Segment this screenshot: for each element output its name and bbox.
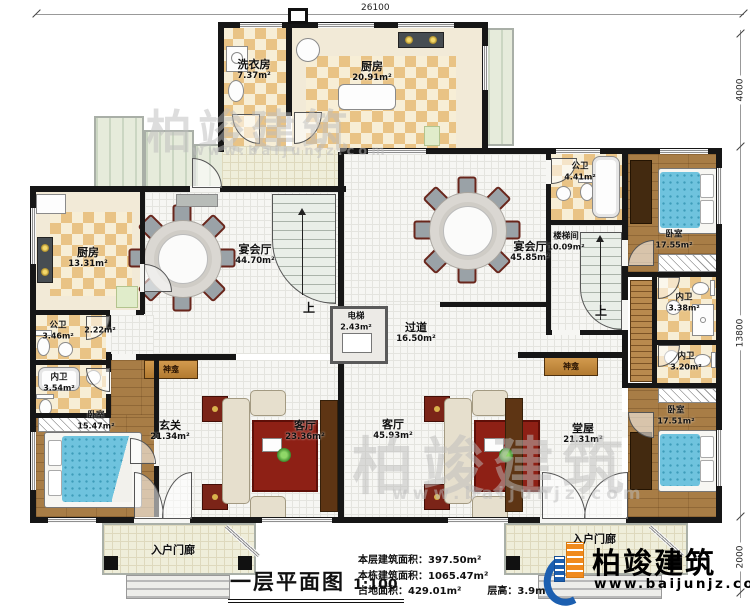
window: [31, 208, 36, 264]
room-label-corridor: 过道16.50m²: [396, 322, 435, 344]
room-label-foyer: 玄关21.34m²: [150, 420, 189, 442]
porch-left-pillar-1: [104, 556, 118, 570]
pillow: [700, 436, 714, 458]
stove-icon: [37, 237, 53, 283]
logo-building-icon: [544, 538, 590, 598]
pillow: [700, 460, 714, 482]
window: [556, 149, 600, 154]
door-opening: [110, 310, 136, 315]
window: [717, 168, 722, 224]
pillow: [48, 470, 62, 496]
bathtub: [592, 156, 620, 218]
window: [717, 430, 722, 486]
room-hall-small-floor: [111, 315, 154, 354]
wall-segment: [140, 190, 145, 314]
green-mat: [424, 126, 440, 146]
window: [262, 518, 332, 523]
room-label-bath-tr: 内卫3.38m²: [668, 294, 700, 313]
elevator-car: [342, 333, 372, 353]
dresser: [630, 432, 652, 490]
flue-box: [288, 8, 308, 24]
room-label-porch-left: 入户门廊: [151, 545, 195, 558]
green-mat: [116, 286, 138, 308]
toilet-tank: [710, 280, 715, 296]
room-label-laundry: 洗衣房7.37m²: [237, 59, 271, 81]
dimension-top-value: 26100: [358, 3, 393, 13]
watermark-url: www.baijunjz.com: [392, 484, 646, 504]
company-logo: 柏竣建筑 www.baijunjz.com: [544, 538, 750, 600]
door-opening: [622, 240, 628, 266]
sofa: [222, 398, 250, 504]
plan-title: 一层平面图: [230, 570, 345, 594]
room-label-bedroom-tr: 卧室17.55m²: [655, 231, 692, 250]
wall-segment: [622, 152, 628, 388]
stair-arrow-head: [298, 208, 306, 215]
window: [448, 518, 508, 523]
room-label-banquet-right: 宴会厅45.85m²: [510, 241, 549, 263]
shower-drain: [700, 317, 706, 323]
stair-arrow-head: [596, 235, 604, 242]
closet: [630, 280, 654, 382]
altar-table: 神龛: [144, 360, 198, 379]
room-label-elevator: 电梯2.43m²: [340, 313, 372, 332]
door-opening: [112, 354, 136, 360]
altar-label: 神龛: [163, 364, 179, 375]
dimension-line-top: [36, 14, 744, 15]
door-opening: [552, 330, 580, 335]
wall-segment: [546, 220, 626, 225]
terrace-step-1: [94, 116, 144, 190]
room-label-bedroom-br: 卧室17.51m²: [657, 407, 694, 426]
armchair: [472, 390, 508, 416]
stove-icon: [398, 32, 444, 48]
plant: [277, 448, 291, 462]
window: [31, 432, 36, 490]
mattress: [660, 434, 700, 486]
stairs-up-label: 上: [595, 305, 607, 319]
wall-segment: [518, 352, 622, 358]
room-label-hall-small: 2.22m²: [84, 325, 116, 334]
window: [318, 23, 374, 28]
logo-tower-blue: [554, 556, 565, 582]
room-label-bath-left: 内卫3.54m²: [43, 374, 75, 393]
wardrobe: [658, 388, 718, 403]
stair-arrow: [302, 215, 303, 295]
window: [483, 46, 488, 90]
room-label-pub-bath-left: 公卫3.46m²: [42, 322, 74, 341]
room-label-kitchen-top: 厨房20.91m²: [352, 61, 391, 83]
wall-segment: [30, 360, 110, 365]
dimension-right-mid-value: 13800: [735, 316, 745, 351]
floor-plan-canvas: 神龛 神龛 洗衣房7.37m² 厨房20.91m² 厨房13.31m² 宴会厅4…: [0, 0, 750, 606]
stats-block: 本层建筑面积：397.50m² 本栋建筑面积：1065.47m² 占地面积：42…: [358, 553, 546, 600]
room-label-banquet-left: 宴会厅44.70m²: [235, 244, 274, 266]
logo-company-url: www.baijunjz.com: [594, 576, 750, 592]
pillow: [700, 200, 714, 224]
stats-line-2: 本栋建筑面积：1065.47m²: [358, 569, 546, 585]
wardrobe: [658, 254, 718, 272]
pillow: [48, 440, 62, 466]
sink-icon: [556, 186, 571, 201]
terrace-kitchen-strip: [486, 28, 514, 146]
dimension-right-top-value: 4000: [735, 76, 745, 105]
window: [48, 518, 96, 523]
blanket-fold: [112, 436, 132, 502]
window: [240, 23, 282, 28]
window: [660, 149, 708, 154]
logo-tower-orange: [566, 542, 584, 578]
sink-icon: [58, 342, 73, 357]
room-label-bedroom-bl: 卧室15.47m²: [77, 412, 114, 431]
door-opening: [622, 300, 628, 330]
watermark-url: www.baijunjz.com: [192, 144, 389, 159]
wall-segment: [30, 186, 346, 192]
room-label-stairwell: 楼梯间10.09m²: [547, 233, 584, 252]
dining-table-top: [443, 206, 493, 256]
dimension-line-right: [740, 30, 741, 598]
wall-segment: [622, 383, 716, 388]
porch-left-steps: [126, 575, 230, 599]
altar-table: 神龛: [544, 357, 598, 376]
mattress: [660, 172, 700, 228]
wall-segment: [440, 302, 546, 307]
altar-label: 神龛: [563, 361, 579, 372]
room-label-kitchen-left: 厨房13.31m²: [68, 247, 107, 269]
dresser: [630, 160, 652, 224]
sideboard: [176, 194, 218, 207]
armchair: [250, 390, 286, 416]
room-label-pub-bath-right: 公卫4.41m²: [564, 163, 596, 182]
tv-cabinet: [320, 400, 338, 512]
room-label-living-left: 客厅23.36m²: [285, 420, 324, 442]
pillow: [700, 174, 714, 198]
window: [398, 23, 454, 28]
stats-line-1: 本层建筑面积：397.50m²: [358, 553, 546, 569]
kitchen-sink-icon: [296, 38, 320, 62]
room-label-bath-br: 内卫3.20m²: [670, 353, 702, 372]
stairs-up-label: 上: [303, 302, 315, 316]
stats-line-3: 占地面积：429.01m²层高：3.9m: [358, 584, 546, 600]
wall-segment: [652, 272, 657, 387]
kitchen-counter: [36, 194, 66, 214]
